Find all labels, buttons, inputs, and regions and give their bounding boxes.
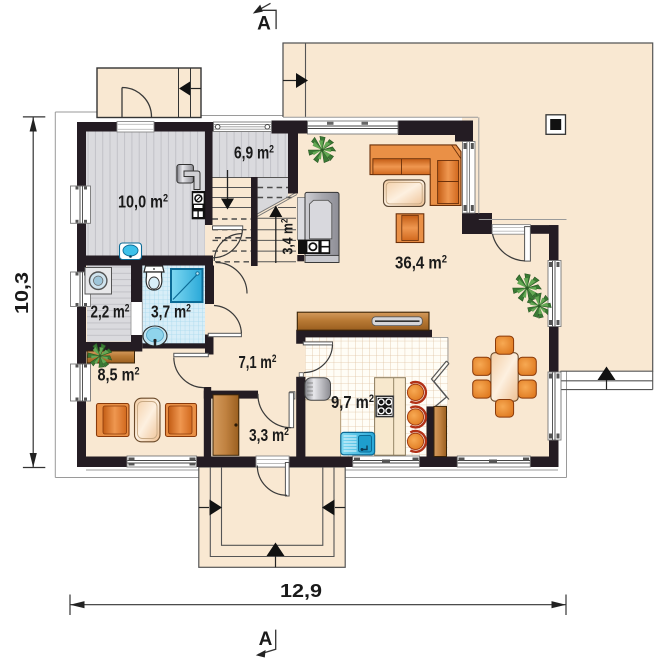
svg-text:A: A — [259, 629, 273, 650]
svg-text:10,0 m2: 10,0 m2 — [118, 192, 168, 212]
svg-text:7,1 m2: 7,1 m2 — [239, 352, 277, 372]
svg-text:36,4 m2: 36,4 m2 — [395, 253, 447, 273]
svg-text:12,9: 12,9 — [280, 580, 322, 601]
svg-text:3,3 m2: 3,3 m2 — [249, 425, 289, 445]
svg-text:2,2 m2: 2,2 m2 — [91, 302, 130, 322]
svg-text:8,5 m2: 8,5 m2 — [98, 365, 140, 385]
svg-text:3,7 m2: 3,7 m2 — [151, 302, 191, 322]
svg-text:10,3: 10,3 — [11, 272, 32, 314]
svg-text:9,7 m2: 9,7 m2 — [331, 392, 374, 412]
svg-text:A: A — [257, 14, 271, 35]
svg-text:3,4 m2: 3,4 m2 — [280, 219, 297, 255]
svg-text:6,9 m2: 6,9 m2 — [234, 143, 274, 163]
